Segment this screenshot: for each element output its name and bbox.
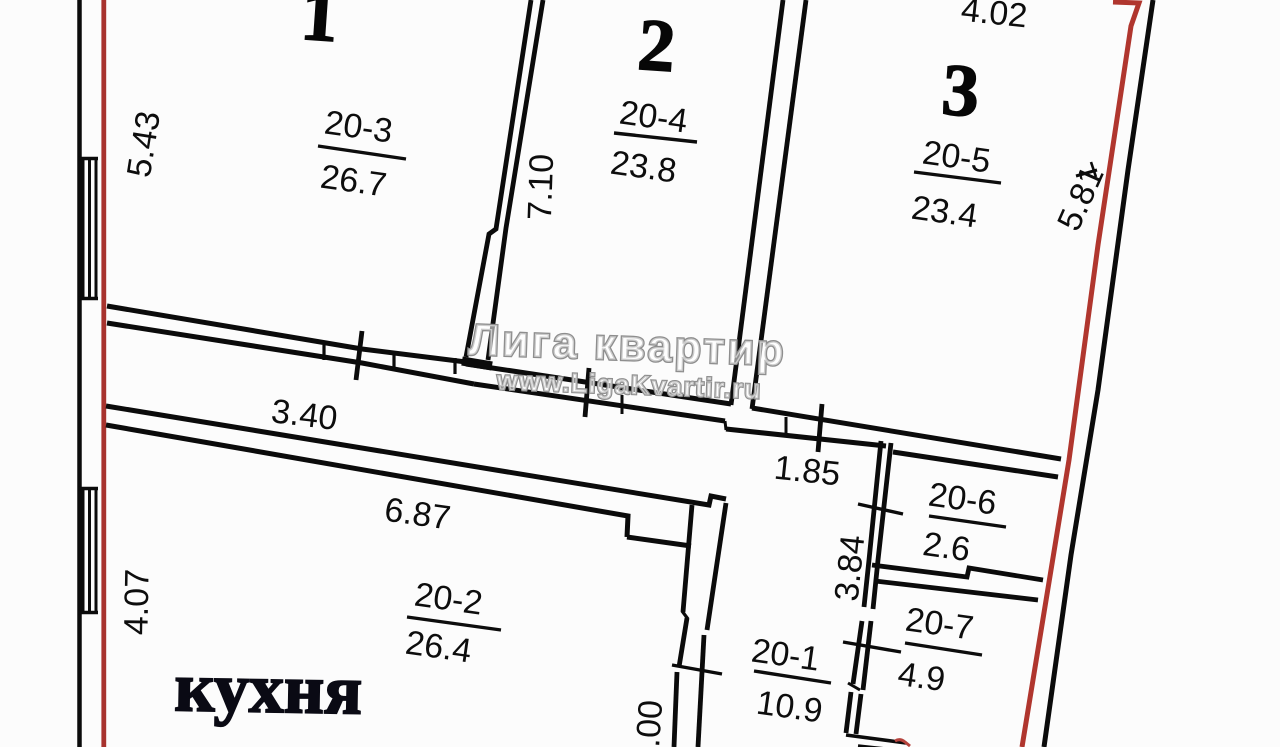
svg-text:2: 2	[635, 4, 678, 88]
svg-text:2.6: 2.6	[920, 525, 972, 569]
svg-text:4.9: 4.9	[895, 655, 947, 699]
svg-text:7.10: 7.10	[521, 153, 561, 220]
svg-text:3.00: 3.00	[628, 699, 671, 747]
svg-text:3: 3	[939, 49, 982, 133]
svg-text:3.84: 3.84	[828, 533, 873, 603]
svg-text:кухня: кухня	[174, 649, 363, 729]
svg-text:1: 1	[298, 0, 341, 58]
svg-text:1.85: 1.85	[772, 449, 842, 494]
svg-text:3.40: 3.40	[269, 392, 339, 438]
svg-text:4.07: 4.07	[117, 569, 156, 636]
